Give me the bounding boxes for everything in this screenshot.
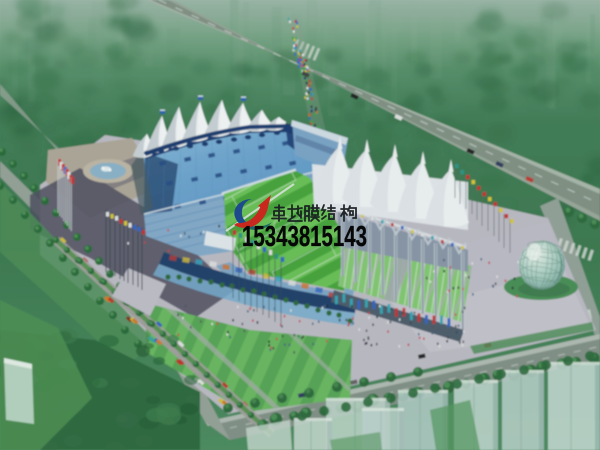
svg-text:15343815143: 15343815143 [242, 221, 367, 253]
